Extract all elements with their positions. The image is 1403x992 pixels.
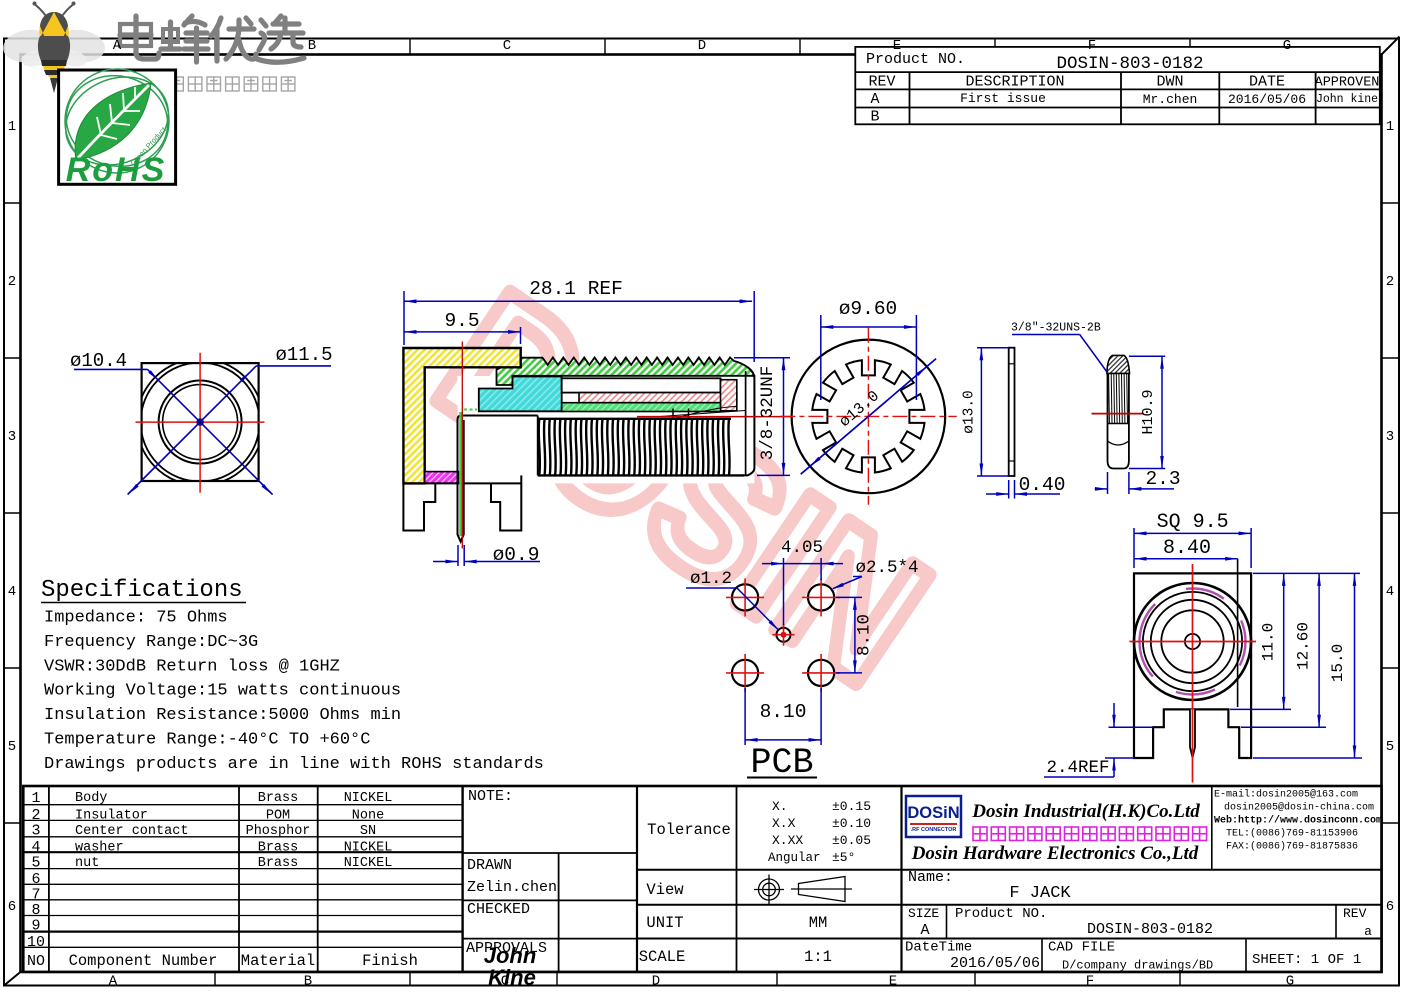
svg-text:Product NO.: Product NO. xyxy=(866,51,965,68)
svg-text:9: 9 xyxy=(31,918,40,935)
svg-text:Body: Body xyxy=(75,791,107,806)
svg-text:6: 6 xyxy=(31,871,40,888)
svg-text:Finish: Finish xyxy=(362,952,418,970)
svg-text:3/8-32UNF: 3/8-32UNF xyxy=(758,366,778,461)
svg-text:REV: REV xyxy=(1343,906,1367,921)
svg-text:B: B xyxy=(308,38,316,54)
svg-text:ø13.0: ø13.0 xyxy=(962,390,978,434)
svg-text:B: B xyxy=(304,974,312,990)
svg-text:Name:: Name: xyxy=(908,869,953,886)
svg-text:Brass: Brass xyxy=(258,856,299,871)
svg-text:Impedance: 75 Ohms: Impedance: 75 Ohms xyxy=(44,609,228,628)
svg-text:View: View xyxy=(646,881,684,899)
svg-text:DOSIN-803-0182: DOSIN-803-0182 xyxy=(1056,54,1203,74)
svg-text:Dosin Industrial(H.K)Co.Ltd: Dosin Industrial(H.K)Co.Ltd xyxy=(971,801,1200,822)
svg-text:SN: SN xyxy=(360,824,376,839)
svg-text:2.4REF: 2.4REF xyxy=(1046,758,1109,778)
svg-text:DESCRIPTION: DESCRIPTION xyxy=(965,74,1064,91)
svg-text:Brass: Brass xyxy=(258,791,299,806)
svg-text:MM: MM xyxy=(809,914,828,932)
svg-text:CHECKED: CHECKED xyxy=(467,901,530,918)
svg-text:28.1 REF: 28.1 REF xyxy=(529,278,623,300)
svg-text:E-mail:dosin2005@163.com: E-mail:dosin2005@163.com xyxy=(1214,789,1358,801)
svg-text:2: 2 xyxy=(31,807,40,824)
svg-text:X.XX: X.XX xyxy=(772,833,803,848)
svg-text:3: 3 xyxy=(8,429,16,445)
svg-text:Web:http://www.dosinconn.com: Web:http://www.dosinconn.com xyxy=(1214,815,1382,827)
svg-text:2.3: 2.3 xyxy=(1145,468,1180,490)
svg-text:Phosphor: Phosphor xyxy=(246,824,311,839)
svg-text:ø1.2: ø1.2 xyxy=(690,569,732,589)
svg-text:NICKEL: NICKEL xyxy=(344,791,393,806)
svg-text:D: D xyxy=(652,974,660,990)
svg-text:VSWR:30DdB Return loss @ 1GHZ: VSWR:30DdB Return loss @ 1GHZ xyxy=(44,657,340,676)
svg-text:Insulator: Insulator xyxy=(75,808,148,823)
svg-text:Brass: Brass xyxy=(258,840,299,855)
svg-text:5: 5 xyxy=(8,739,16,755)
svg-text:F: F xyxy=(1086,974,1094,990)
svg-text:ø2.5*4: ø2.5*4 xyxy=(855,558,918,578)
svg-text:DWN: DWN xyxy=(1156,74,1183,91)
svg-text:3/8″-32UNS-2B: 3/8″-32UNS-2B xyxy=(1011,322,1101,335)
svg-text:1: 1 xyxy=(8,119,16,135)
svg-text:DateTime: DateTime xyxy=(905,940,972,956)
svg-text:NOTE:: NOTE: xyxy=(468,788,513,805)
svg-text:Temperature Range:-40°C TO +60: Temperature Range:-40°C TO +60°C xyxy=(44,731,370,750)
svg-text:CAD FILE: CAD FILE xyxy=(1048,940,1115,956)
svg-text:dosin2005@dosin-china.com: dosin2005@dosin-china.com xyxy=(1224,802,1374,814)
svg-text:Working Voltage:15 watts conti: Working Voltage:15 watts continuous xyxy=(44,682,401,701)
svg-text:SHEET: 1 OF 1: SHEET: 1 OF 1 xyxy=(1252,952,1361,968)
svg-text:8.10: 8.10 xyxy=(855,614,875,656)
svg-text:±5°: ±5° xyxy=(832,850,855,865)
svg-text:C: C xyxy=(503,38,511,54)
svg-text:Kine: Kine xyxy=(488,965,536,990)
svg-text:NICKEL: NICKEL xyxy=(344,840,393,855)
svg-text:F: F xyxy=(1088,38,1096,54)
svg-text:John kine: John kine xyxy=(1316,93,1378,106)
svg-text:RoHS: RoHS xyxy=(66,151,167,189)
svg-text:A: A xyxy=(109,974,118,990)
svg-text:2016/05/06: 2016/05/06 xyxy=(1228,92,1306,107)
svg-text:6: 6 xyxy=(1386,899,1394,915)
svg-text:2: 2 xyxy=(1386,274,1394,290)
svg-text:A: A xyxy=(920,922,929,939)
svg-text:E: E xyxy=(889,974,897,990)
svg-text:ø10.4: ø10.4 xyxy=(70,350,127,372)
svg-text:DOSiN: DOSiN xyxy=(907,804,959,822)
svg-text:4: 4 xyxy=(8,584,16,600)
svg-text:4: 4 xyxy=(1386,584,1394,600)
svg-text:C: C xyxy=(501,974,509,990)
svg-text:ø11.5: ø11.5 xyxy=(275,344,332,366)
svg-text:12.60: 12.60 xyxy=(1295,622,1313,670)
svg-text:Tolerance: Tolerance xyxy=(647,821,731,839)
svg-text:SQ 9.5: SQ 9.5 xyxy=(1157,511,1229,534)
svg-text:Insulation Resistance:5000 Ohm: Insulation Resistance:5000 Ohms min xyxy=(44,706,401,725)
svg-text:±0.15: ±0.15 xyxy=(832,799,871,814)
svg-text:11.0: 11.0 xyxy=(1260,623,1278,661)
svg-text:10: 10 xyxy=(27,934,45,951)
svg-text:Frequency Range:DC~3G: Frequency Range:DC~3G xyxy=(44,633,258,652)
svg-text:Product NO.: Product NO. xyxy=(955,906,1047,922)
svg-text:15.0: 15.0 xyxy=(1329,644,1347,682)
svg-text:ø9.60: ø9.60 xyxy=(839,298,898,320)
svg-text:Zelin.chen: Zelin.chen xyxy=(467,879,557,896)
svg-text:X.X: X.X xyxy=(772,816,796,831)
svg-text:SCALE: SCALE xyxy=(639,948,686,966)
svg-text:D: D xyxy=(698,38,706,54)
svg-text:DATE: DATE xyxy=(1249,74,1285,91)
svg-text:Mr.chen: Mr.chen xyxy=(1143,92,1198,107)
svg-text:F JACK: F JACK xyxy=(1009,884,1071,903)
svg-text:A: A xyxy=(870,91,879,108)
svg-text:X.: X. xyxy=(772,799,788,814)
svg-text:1: 1 xyxy=(1386,119,1394,135)
svg-text:1: 1 xyxy=(31,790,40,807)
svg-text:1:1: 1:1 xyxy=(804,948,832,966)
svg-text:APPROVEN: APPROVEN xyxy=(1315,76,1380,91)
svg-text:5: 5 xyxy=(31,854,40,871)
svg-text:A: A xyxy=(113,38,122,54)
svg-text:B: B xyxy=(870,109,879,126)
svg-text:NO: NO xyxy=(27,953,45,970)
svg-text:REV: REV xyxy=(868,74,895,91)
svg-text:None: None xyxy=(352,808,384,823)
svg-text:Center contact: Center contact xyxy=(75,824,188,839)
svg-text:0.40: 0.40 xyxy=(1019,474,1066,496)
svg-text:5: 5 xyxy=(1386,739,1394,755)
svg-text:ø0.9: ø0.9 xyxy=(493,544,540,566)
svg-text:6: 6 xyxy=(8,899,16,915)
svg-text:8.10: 8.10 xyxy=(760,701,807,723)
svg-text:G: G xyxy=(1286,974,1294,990)
svg-text:DOSIN-803-0182: DOSIN-803-0182 xyxy=(1087,921,1213,938)
svg-text:8: 8 xyxy=(31,902,40,919)
svg-text:H10.9: H10.9 xyxy=(1140,389,1157,434)
svg-text:First issue: First issue xyxy=(960,91,1046,106)
svg-text:7: 7 xyxy=(31,887,40,904)
svg-text:D/company drawings/BD: D/company drawings/BD xyxy=(1062,959,1213,973)
svg-text:NICKEL: NICKEL xyxy=(344,856,393,871)
svg-text:a: a xyxy=(1364,924,1372,939)
svg-text:Component Number: Component Number xyxy=(69,952,218,970)
svg-text:3: 3 xyxy=(31,823,40,840)
svg-text:4.05: 4.05 xyxy=(781,538,823,558)
svg-text:3: 3 xyxy=(1386,429,1394,445)
svg-text:UNIT: UNIT xyxy=(646,914,683,932)
svg-text:9.5: 9.5 xyxy=(444,310,479,332)
svg-text:G: G xyxy=(1283,38,1291,54)
svg-text:washer: washer xyxy=(75,840,124,855)
svg-text:FAX:(0086)769-81875836: FAX:(0086)769-81875836 xyxy=(1226,841,1358,853)
svg-text:±0.10: ±0.10 xyxy=(832,816,871,831)
svg-text:E: E xyxy=(893,38,901,54)
svg-text:TEL:(0086)769-81153906: TEL:(0086)769-81153906 xyxy=(1226,828,1358,840)
svg-text:POM: POM xyxy=(266,808,290,823)
svg-text:.RF CONNECTOR: .RF CONNECTOR xyxy=(911,827,957,833)
svg-text:nut: nut xyxy=(75,856,99,871)
svg-text:2: 2 xyxy=(8,274,16,290)
svg-text:Material: Material xyxy=(241,952,315,970)
svg-text:SIZE: SIZE xyxy=(908,906,939,921)
svg-text:Drawings products are in line: Drawings products are in line with ROHS … xyxy=(44,755,544,774)
svg-text:Angular: Angular xyxy=(768,851,821,865)
svg-text:Dosin Hardware Electronics Co.: Dosin Hardware Electronics Co.,Ltd xyxy=(911,843,1199,864)
svg-text:±0.05: ±0.05 xyxy=(832,833,871,848)
svg-text:2016/05/06: 2016/05/06 xyxy=(950,955,1040,972)
svg-text:Specifications: Specifications xyxy=(41,577,243,604)
svg-text:DRAWN: DRAWN xyxy=(467,857,512,874)
svg-text:8.40: 8.40 xyxy=(1163,537,1211,560)
